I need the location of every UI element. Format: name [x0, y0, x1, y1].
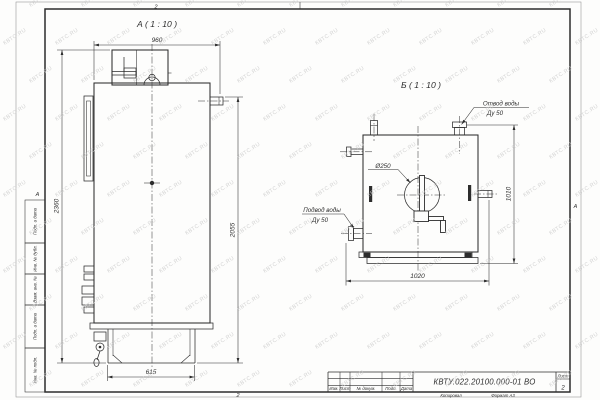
outlet-note-line1: Отвод воды	[483, 101, 520, 108]
base-pedestal	[108, 329, 195, 363]
inlet-note-line2: Ду 50	[311, 217, 329, 224]
dim-2055-text: 2055	[230, 222, 237, 238]
outer-border	[16, 2, 581, 397]
view-a-label: А ( 1 : 10 )	[136, 19, 177, 29]
sheet-number: 2	[560, 386, 565, 392]
field-label: Подп. и дата	[33, 312, 38, 340]
view-b: Б ( 1 : 10 ) Отвод воды Ду 50	[302, 80, 529, 286]
col-docnum: № докум.	[357, 386, 376, 391]
field-label: Взам. инв. №	[33, 276, 38, 303]
zone-number-top: 2	[153, 4, 157, 10]
side-slot-right	[468, 185, 471, 201]
format-label: Формат А3	[491, 393, 515, 398]
level-gauge-strip	[84, 96, 93, 181]
side-slot-left	[369, 186, 372, 202]
rear-stub	[198, 97, 229, 105]
outlet-stub	[453, 116, 467, 154]
side-stub	[340, 147, 374, 157]
field-label: Инв. № подл.	[33, 357, 38, 384]
dim-1010-text: 1010	[506, 186, 513, 201]
dim-615: 615	[108, 365, 195, 381]
inlet-stub	[341, 227, 372, 241]
door-dia-text: Ø250	[374, 163, 391, 170]
chimney-box	[112, 50, 168, 85]
latch-handle	[94, 332, 106, 367]
technical-drawing: 2 2 А А Подп. и дата Инв. № дубл. Взам. …	[0, 0, 600, 400]
outlet-note-line2: Ду 50	[486, 110, 504, 117]
col-izm: Изм.	[329, 386, 338, 391]
left-margin-fields: Подп. и дата Инв. № дубл. Взам. инв. № П…	[25, 200, 45, 392]
dim-615-text: 615	[146, 369, 157, 376]
col-podp: Подп.	[385, 386, 396, 391]
door-shaft-handle	[414, 176, 446, 233]
door-dia-note: Ø250	[368, 163, 411, 183]
damper-lever	[112, 57, 136, 78]
inlet-note: Подвод воды Ду 50	[302, 207, 354, 229]
inlet-note-line1: Подвод воды	[303, 207, 341, 214]
title-block: Изм. Лист № докум. Подп. Дата КВТУ.022.2…	[328, 372, 570, 398]
skid-rails	[359, 252, 478, 264]
col-list: Лист	[338, 386, 350, 391]
field-label: Инв. № дубл.	[33, 245, 38, 271]
dim-2360: 2360	[54, 50, 111, 363]
zone-number-bottom: 2	[235, 393, 239, 399]
copied-label: Копировал	[440, 393, 462, 398]
drawing-sheet: 2 2 А А Подп. и дата Инв. № дубл. Взам. …	[0, 0, 600, 400]
zone-letter-left: А	[35, 192, 40, 198]
dim-2360-text: 2360	[54, 198, 61, 214]
sheet-label: Лист	[556, 373, 568, 378]
dim-960-text: 960	[152, 37, 163, 44]
door-hinges	[82, 266, 94, 313]
col-data: Дата	[400, 386, 413, 391]
sheet-frame: 2 2 А А Подп. и дата Инв. № дубл. Взам. …	[16, 2, 581, 399]
view-a: А ( 1 : 10 )	[54, 19, 244, 381]
outlet-note: Отвод воды Ду 50	[462, 101, 530, 125]
right-stub	[474, 191, 497, 198]
field-label: Подп. и дата	[33, 207, 38, 235]
zone-letter-right: А	[573, 204, 578, 210]
document-number: КВТУ.022.20100.000-01 ВО	[434, 378, 536, 387]
air-stub	[371, 114, 378, 141]
dim-1020-text: 1020	[410, 273, 425, 280]
view-b-label: Б ( 1 : 10 )	[401, 80, 441, 90]
bottom-plate	[90, 323, 213, 329]
